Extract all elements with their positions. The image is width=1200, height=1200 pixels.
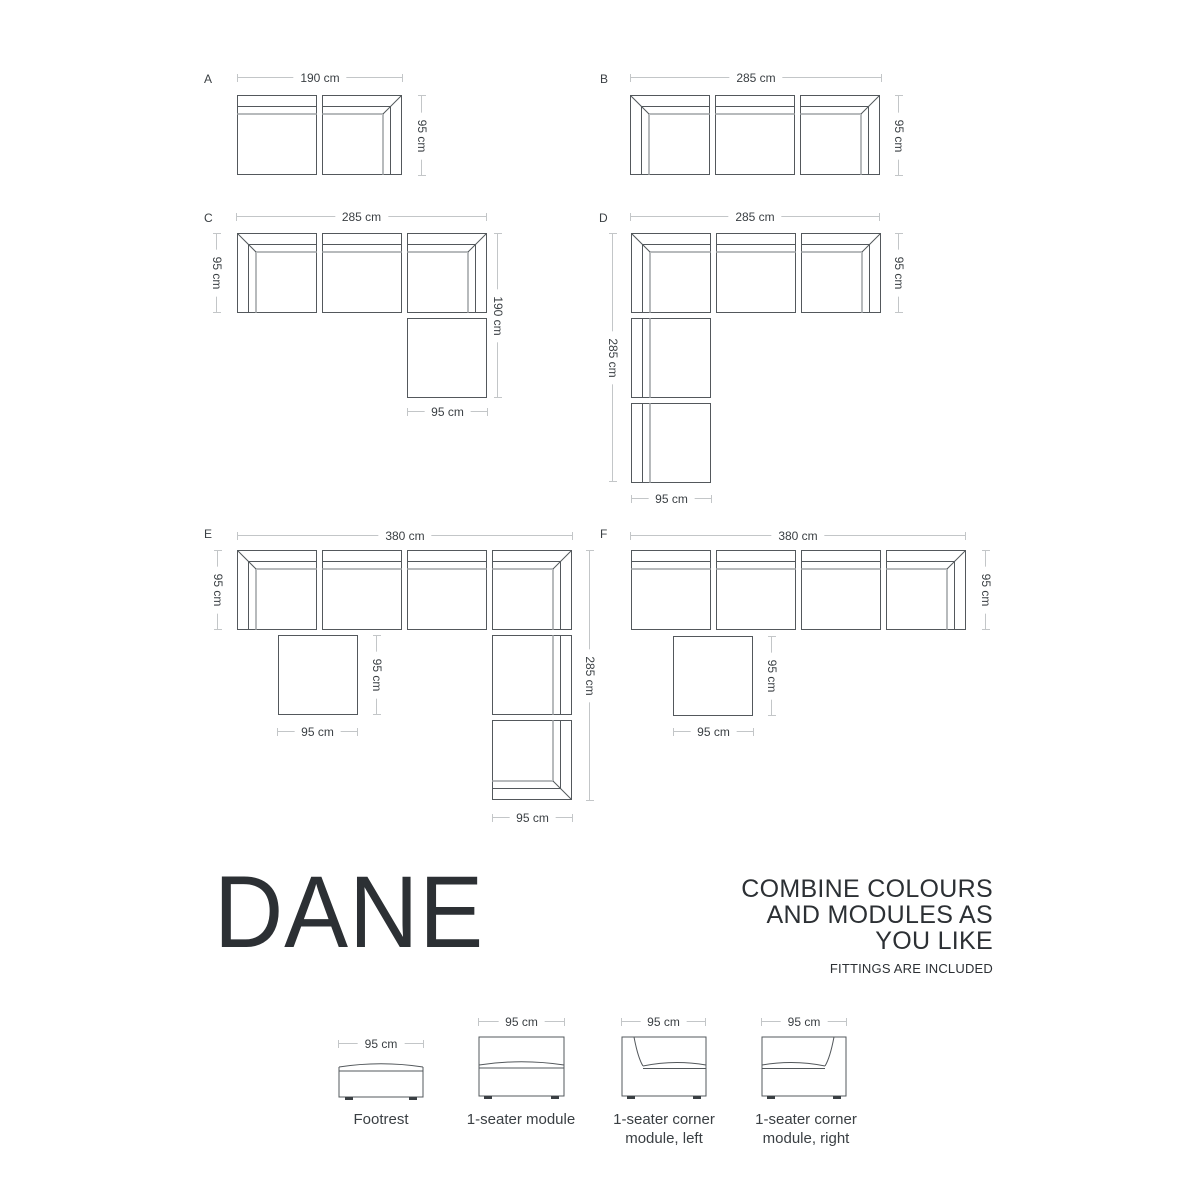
corner-left-dim: 95 cm [621, 1014, 706, 1029]
config-c-dim-bottom: 95 cm [407, 404, 488, 419]
corner-module-bottom-top-view [493, 721, 572, 800]
dim-text: 285 cm [728, 210, 781, 224]
fittings-note: FITTINGS ARE INCLUDED [741, 961, 993, 976]
corner-module-left-top-view [632, 234, 711, 313]
seater-module-top-view [493, 636, 572, 715]
config-a-label: A [204, 72, 212, 86]
seater-module-top-view [238, 96, 317, 175]
corner-right-front-view [761, 1036, 847, 1100]
dim-text: 95 cm [498, 1015, 545, 1029]
dim-text: 95 cm [370, 652, 384, 699]
corner-module-right-top-view [887, 551, 966, 630]
config-e-dim-bottom: 95 cm [492, 810, 573, 825]
config-c-dim-top: 285 cm [236, 209, 487, 224]
dim-text: 95 cm [765, 653, 779, 700]
config-c-dim-left: 95 cm [209, 233, 224, 313]
config-a-dim-top: 190 cm [237, 70, 403, 85]
config-c-plan [237, 233, 488, 399]
dim-text: 285 cm [729, 71, 782, 85]
footrest-top-view [279, 636, 358, 715]
dim-text: 380 cm [378, 529, 431, 543]
config-d-dim-bottom: 95 cm [631, 491, 712, 506]
dim-text: 95 cm [424, 405, 471, 419]
corner-right-icon [762, 1037, 846, 1099]
dim-text: 95 cm [294, 725, 341, 739]
seater-module-top-view [408, 551, 487, 630]
config-d-dim-left: 285 cm [605, 233, 620, 482]
dim-text: 95 cm [358, 1037, 405, 1051]
corner-module-left-top-view [631, 96, 710, 175]
config-b-plan [630, 95, 881, 176]
config-e-footrest-dim-right: 95 cm [369, 635, 384, 715]
corner-module-right-top-view [408, 234, 487, 313]
config-c-dim-right: 190 cm [490, 233, 505, 398]
seater-front-view [478, 1036, 565, 1100]
config-f-dim-right: 95 cm [978, 550, 993, 630]
config-d-dim-right: 95 cm [891, 233, 906, 313]
dim-text: 95 cm [211, 567, 225, 614]
dim-text: 285 cm [606, 331, 620, 384]
dim-text: 95 cm [210, 250, 224, 297]
config-f-footrest-dim-right: 95 cm [764, 636, 779, 716]
config-e-label: E [204, 527, 212, 541]
dim-text: 95 cm [781, 1015, 828, 1029]
seater-dim: 95 cm [478, 1014, 565, 1029]
footrest-dim: 95 cm [338, 1036, 424, 1051]
corner-module-right-top-view [801, 96, 880, 175]
config-e-plan [237, 550, 573, 801]
seater-module-top-view [323, 551, 402, 630]
tagline-line-3: YOU LIKE [741, 928, 993, 954]
corner-module-right-top-view [493, 551, 572, 630]
config-b-label: B [600, 72, 608, 86]
tagline-line-1: COMBINE COLOURS [741, 876, 993, 902]
seater-icon [479, 1037, 564, 1099]
footrest-top-view [408, 319, 487, 398]
tagline: COMBINE COLOURS AND MODULES AS YOU LIKE … [741, 876, 993, 976]
config-d-label: D [599, 211, 608, 225]
corner-right-label: 1-seater corner module, right [721, 1110, 891, 1148]
config-f-dim-top: 380 cm [630, 528, 966, 543]
corner-left-front-view [621, 1036, 707, 1100]
footrest-top-view [674, 637, 753, 716]
dim-text: 285 cm [583, 649, 597, 702]
dim-text: 190 cm [293, 71, 346, 85]
dim-text: 95 cm [892, 112, 906, 159]
corner-module-right-top-view [802, 234, 881, 313]
seater-module-top-view [717, 551, 796, 630]
config-a-dim-right: 95 cm [414, 95, 429, 176]
product-title: DANE [214, 862, 484, 962]
corner-right-dim: 95 cm [761, 1014, 847, 1029]
seater-module-top-view [632, 319, 711, 398]
config-d-dim-top: 285 cm [630, 209, 880, 224]
footrest-icon [339, 1064, 423, 1100]
config-e-dim-right: 285 cm [582, 550, 597, 801]
dim-text: 95 cm [415, 112, 429, 159]
config-f-label: F [600, 527, 607, 541]
corner-module-left-top-view [238, 551, 317, 630]
seater-module-top-view [632, 404, 711, 483]
dim-text: 95 cm [509, 811, 556, 825]
seater-module-top-view [716, 96, 795, 175]
seater-module-top-view [632, 551, 711, 630]
dim-text: 95 cm [648, 492, 695, 506]
dane-sofa-module-diagram: A 190 cm 95 cm B 285 cm 95 cm [0, 0, 1200, 1200]
config-c-label: C [204, 211, 213, 225]
seater-module-top-view [802, 551, 881, 630]
dim-text: 285 cm [335, 210, 388, 224]
dim-text: 95 cm [979, 567, 993, 614]
corner-module-right-top-view [323, 96, 402, 175]
config-a-plan [237, 95, 403, 176]
footrest-front-view [338, 1058, 424, 1102]
config-d-plan [631, 233, 882, 484]
tagline-line-2: AND MODULES AS [741, 902, 993, 928]
corner-left-icon [622, 1037, 706, 1099]
config-e-dim-left: 95 cm [210, 550, 225, 630]
dim-text: 95 cm [640, 1015, 687, 1029]
dim-text: 95 cm [690, 725, 737, 739]
config-e-dim-top: 380 cm [237, 528, 573, 543]
config-f-plan [631, 550, 967, 717]
dim-text: 95 cm [892, 250, 906, 297]
config-e-footrest-dim-bottom: 95 cm [277, 724, 358, 739]
seater-module-top-view [323, 234, 402, 313]
config-f-footrest-dim-bottom: 95 cm [673, 724, 754, 739]
config-b-dim-top: 285 cm [630, 70, 882, 85]
seater-module-top-view [717, 234, 796, 313]
dim-text: 380 cm [771, 529, 824, 543]
corner-module-left-top-view [238, 234, 317, 313]
config-b-dim-right: 95 cm [891, 95, 906, 176]
dim-text: 190 cm [491, 289, 505, 342]
